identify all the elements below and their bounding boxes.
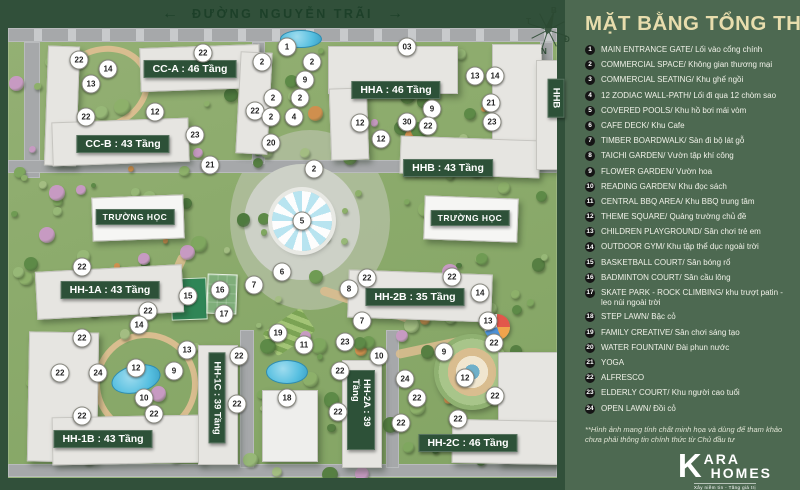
disclaimer-text: **Hình ảnh mang tính chất minh họa và dù… [585, 425, 786, 445]
legend-number-badge: 13 [585, 227, 595, 237]
legend-item: 19FAMILY CREATIVE/ Sân chơi sáng tạo [585, 328, 786, 338]
road-name-label: ĐƯỜNG NGUYỄN TRÃI [192, 7, 373, 21]
map-marker: 14 [130, 316, 149, 335]
pool [266, 360, 308, 384]
map-marker: 22 [73, 258, 92, 277]
map-marker: 22 [485, 334, 504, 353]
building-label: HH-2A : 39 Tầng [347, 370, 375, 450]
map-marker: 30 [398, 113, 417, 132]
logo-k-mark: K [678, 451, 702, 481]
legend-number-badge: 16 [585, 273, 595, 283]
tree [9, 76, 24, 91]
map-marker: 22 [73, 407, 92, 426]
compass-icon: B T Đ N [524, 4, 572, 56]
tree [237, 213, 250, 226]
tree [39, 227, 55, 243]
map-marker: 2 [305, 160, 324, 179]
legend-label: YOGA [601, 358, 624, 368]
legend-label: ELDERLY COURT/ Khu người cao tuổi [601, 388, 740, 398]
map-marker: 12 [146, 103, 165, 122]
legend-number-badge: 19 [585, 328, 595, 338]
building-label: HHB : 43 Tầng [403, 159, 493, 177]
map-marker: 13 [178, 341, 197, 360]
map-marker: 5 [293, 212, 312, 231]
legend-item: 1MAIN ENTRANCE GATE/ Lối vào cổng chính [585, 45, 786, 55]
legend-label: OUTDOOR GYM/ Khu tập thể dục ngoài trời [601, 242, 759, 252]
tree [193, 148, 204, 159]
tree [224, 88, 238, 102]
map-marker: 22 [228, 395, 247, 414]
logo-line1: ARA [704, 452, 772, 466]
tree [180, 245, 195, 260]
svg-text:T: T [526, 17, 531, 26]
map-marker: 9 [296, 71, 315, 90]
legend-number-badge: 12 [585, 212, 595, 222]
legend-number-badge: 23 [585, 388, 595, 398]
legend-number-badge: 3 [585, 75, 595, 85]
map-marker: 11 [295, 336, 314, 355]
svg-text:Đ: Đ [564, 35, 570, 44]
logo-tagline: Xây niềm tin - Tăng giá trị [694, 483, 756, 490]
tree [39, 181, 47, 189]
legend-label: CENTRAL BBQ AREA/ Khu BBQ trung tâm [601, 197, 755, 207]
legend-item: 3COMMERCIAL SEATING/ Khu ghế ngồi [585, 75, 786, 85]
road-bottom [8, 464, 557, 477]
legend-number-badge: 14 [585, 242, 595, 252]
map-marker: 23 [186, 126, 205, 145]
tree [179, 166, 189, 176]
legend-label: OPEN LAWN/ Đồi cỏ [601, 404, 676, 414]
map-marker: 24 [89, 364, 108, 383]
map-marker: 19 [269, 324, 288, 343]
legend-label: COMMERCIAL SEATING/ Khu ghế ngồi [601, 75, 743, 85]
legend-panel: MẶT BẰNG TỔNG THỂ 1MAIN ENTRANCE GATE/ L… [565, 0, 800, 490]
map-marker: 2 [262, 108, 281, 127]
tree [24, 257, 38, 271]
tree [318, 48, 324, 54]
map-marker: 22 [77, 108, 96, 127]
tree [11, 211, 17, 217]
tree [21, 175, 27, 181]
tree [76, 185, 86, 195]
legend-item: 17SKATE PARK - ROCK CLIMBING/ khu trượt … [585, 288, 786, 307]
legend-number-badge: 9 [585, 167, 595, 177]
legend-label: TAICHI GARDEN/ Vườn tập khí công [601, 151, 734, 161]
map-marker: 13 [82, 75, 101, 94]
building-label: TRƯỜNG HỌC [431, 210, 510, 226]
legend-item: 8TAICHI GARDEN/ Vườn tập khí công [585, 151, 786, 161]
legend-number-badge: 6 [585, 121, 595, 131]
map-marker: 15 [179, 287, 198, 306]
kara-homes-logo: K ARA HOMES Xây niềm tin - Tăng giá trị [678, 451, 772, 490]
legend-item: 22ALFRESCO [585, 373, 786, 383]
tree [300, 148, 310, 158]
tree [317, 354, 323, 360]
svg-text:B: B [551, 6, 557, 15]
legend-label: BADMINTON COURT/ Sân cầu lông [601, 273, 731, 283]
tree [355, 190, 362, 197]
map-marker: 13 [466, 67, 485, 86]
map-marker: 20 [262, 134, 281, 153]
legend-item: 2COMMERCIAL SPACE/ Không gian thương mại [585, 60, 786, 70]
map-marker: 23 [483, 113, 502, 132]
legend-item: 16BADMINTON COURT/ Sân cầu lông [585, 273, 786, 283]
map-marker: 22 [443, 268, 462, 287]
legend-item: 23ELDERLY COURT/ Khu người cao tuổi [585, 388, 786, 398]
map-marker: 12 [351, 114, 370, 133]
master-plan-map: ← ĐƯỜNG NGUYỄN TRÃI → B T Đ N CC-A : 46 … [0, 0, 565, 490]
map-marker: 17 [215, 305, 234, 324]
legend-label: SKATE PARK - ROCK CLIMBING/ khu trượt pa… [601, 288, 786, 307]
legend-item: 13CHILDREN PLAYGROUND/ Sân chơi trẻ em [585, 227, 786, 237]
tree [224, 247, 230, 253]
tree [512, 305, 522, 315]
legend-label: WATER FOUNTAIN/ Đài phun nước [601, 343, 729, 353]
legend-label: MAIN ENTRANCE GATE/ Lối vào cổng chính [601, 45, 762, 55]
legend-number-badge: 21 [585, 358, 595, 368]
svg-text:N: N [541, 47, 547, 56]
legend-number-badge: 18 [585, 312, 595, 322]
map-marker: 7 [245, 276, 264, 295]
legend-item: 6CAFE DECK/ Khu Cafe [585, 121, 786, 131]
tree [128, 166, 134, 172]
map-marker: 22 [358, 269, 377, 288]
legend-label: FAMILY CREATIVE/ Sân chơi sáng tạo [601, 328, 740, 338]
legend-number-badge: 15 [585, 258, 595, 268]
legend-label: COVERED POOLS/ Khu hồ bơi mái vòm [601, 106, 746, 116]
tree [322, 467, 338, 478]
tree [243, 453, 257, 467]
legend-label: THEME SQUARE/ Quảng trường chủ đề [601, 212, 746, 222]
map-marker: 12 [456, 369, 475, 388]
map-marker: 7 [353, 312, 372, 331]
building-label: CC-A : 46 Tầng [144, 60, 237, 78]
legend-item: 5COVERED POOLS/ Khu hồ bơi mái vòm [585, 106, 786, 116]
road-left [24, 42, 40, 178]
building-label: HH-2C : 46 Tầng [418, 434, 517, 452]
map-marker: 23 [336, 333, 355, 352]
building-label: HHA : 46 Tầng [351, 81, 440, 99]
map-marker: 22 [51, 364, 70, 383]
map-marker: 22 [408, 389, 427, 408]
legend-item: 10READING GARDEN/ Khu đọc sách [585, 182, 786, 192]
map-marker: 9 [435, 343, 454, 362]
map-marker: 22 [392, 414, 411, 433]
tree [256, 323, 262, 329]
map-marker: 22 [331, 362, 350, 381]
building-label: HHB [548, 79, 565, 118]
legend-number-badge: 10 [585, 182, 595, 192]
map-marker: 22 [70, 51, 89, 70]
legend-number-badge: 2 [585, 60, 595, 70]
map-marker: 13 [479, 312, 498, 331]
legend-item: 12THEME SQUARE/ Quảng trường chủ đề [585, 212, 786, 222]
tree [95, 106, 108, 119]
map-marker: 1 [278, 38, 297, 57]
tree [308, 106, 323, 121]
map-marker: 8 [340, 280, 359, 299]
map-marker: 10 [370, 347, 389, 366]
map-marker: 12 [372, 130, 391, 149]
tree [371, 119, 378, 126]
legend-number-badge: 17 [585, 288, 595, 298]
map-marker: 22 [329, 403, 348, 422]
legend-list: 1MAIN ENTRANCE GATE/ Lối vào cổng chính2… [585, 45, 786, 419]
map-marker: 9 [165, 362, 184, 381]
tree [476, 253, 488, 265]
map-marker: 22 [194, 44, 213, 63]
map-marker: 16 [211, 281, 230, 300]
panel-title: MẶT BẰNG TỔNG THỂ [585, 12, 786, 36]
map-marker: 22 [145, 405, 164, 424]
tree [138, 253, 150, 265]
legend-number-badge: 1 [585, 45, 595, 55]
map-marker: 14 [486, 67, 505, 86]
map-marker: 6 [273, 263, 292, 282]
tree [403, 442, 414, 453]
tree [204, 101, 210, 107]
legend-label: COMMERCIAL SPACE/ Không gian thương mại [601, 60, 772, 70]
tree [404, 199, 411, 206]
map-marker: 24 [396, 370, 415, 389]
building-label: TRƯỜNG HỌC [96, 209, 175, 225]
map-marker: 03 [398, 38, 417, 57]
legend-label: BASKETBALL COURT/ Sân bóng rổ [601, 258, 730, 268]
legend-item: 20WATER FOUNTAIN/ Đài phun nước [585, 343, 786, 353]
legend-number-badge: 5 [585, 106, 595, 116]
legend-label: CHILDREN PLAYGROUND/ Sân chơi trẻ em [601, 227, 761, 237]
tree [275, 296, 282, 303]
map-marker: 21 [482, 94, 501, 113]
site-plan-page: ← ĐƯỜNG NGUYỄN TRÃI → B T Đ N CC-A : 46 … [0, 0, 800, 490]
tree [53, 207, 62, 216]
legend-label: 12 ZODIAC WALL-PATH/ Lối đi qua 12 chòm … [601, 91, 776, 101]
legend-number-badge: 8 [585, 151, 595, 161]
map-marker: 22 [419, 117, 438, 136]
tree [355, 467, 369, 478]
map-marker: 22 [73, 329, 92, 348]
building-label: HH-1B : 43 Tầng [53, 430, 152, 448]
legend-number-badge: 4 [585, 91, 595, 101]
legend-item: 412 ZODIAC WALL-PATH/ Lối đi qua 12 chòm… [585, 91, 786, 101]
legend-number-badge: 20 [585, 343, 595, 353]
building-label: HH-2B : 35 Tầng [365, 288, 464, 306]
tree [261, 229, 267, 235]
map-marker: 14 [471, 284, 490, 303]
legend-number-badge: 7 [585, 136, 595, 146]
map-marker: 2 [303, 53, 322, 72]
legend-label: STEP LAWN/ Bậc cỏ [601, 312, 676, 322]
tree [91, 183, 96, 188]
tree [114, 99, 130, 115]
legend-item: 11CENTRAL BBQ AREA/ Khu BBQ trung tâm [585, 197, 786, 207]
legend-label: ALFRESCO [601, 373, 644, 383]
tree [536, 191, 547, 202]
legend-item: 15BASKETBALL COURT/ Sân bóng rổ [585, 258, 786, 268]
tree [464, 108, 476, 120]
legend-number-badge: 22 [585, 373, 595, 383]
tree [34, 83, 42, 91]
map-marker: 2 [253, 53, 272, 72]
logo-line2: HOMES [711, 466, 772, 480]
tree [527, 299, 535, 307]
map-marker: 18 [278, 389, 297, 408]
map-marker: 4 [285, 108, 304, 127]
legend-label: TIMBER BOARDWALK/ Sàn đi bộ lát gỗ [601, 136, 744, 146]
map-marker: 21 [201, 156, 220, 175]
map-marker: 22 [449, 410, 468, 429]
map-marker: 22 [486, 387, 505, 406]
tree [120, 329, 130, 339]
tree [354, 337, 366, 349]
map-marker: 2 [291, 89, 310, 108]
tree [421, 345, 435, 359]
legend-item: 14OUTDOOR GYM/ Khu tập thể dục ngoài trờ… [585, 242, 786, 252]
legend-label: FLOWER GARDEN/ Vườn hoa [601, 167, 712, 177]
map-marker: 2 [264, 89, 283, 108]
legend-number-badge: 24 [585, 404, 595, 414]
building-label: HH-1C : 39 Tầng [209, 352, 226, 443]
map-marker: 22 [230, 347, 249, 366]
tree [541, 254, 548, 261]
building-label: CC-B : 43 Tầng [76, 135, 169, 153]
road-nguyen-trai: ← ĐƯỜNG NGUYỄN TRÃI → [0, 0, 565, 28]
tree [511, 290, 520, 299]
legend-item: 9FLOWER GARDEN/ Vườn hoa [585, 167, 786, 177]
map-marker: 12 [127, 359, 146, 378]
tree [396, 330, 408, 342]
building-label: HH-1A : 43 Tầng [61, 281, 160, 299]
legend-label: CAFE DECK/ Khu Cafe [601, 121, 685, 131]
legend-item: 21YOGA [585, 358, 786, 368]
legend-item: 24OPEN LAWN/ Đồi cỏ [585, 404, 786, 414]
tree [253, 158, 263, 168]
arrow-right-icon: → [387, 6, 403, 22]
tree [327, 424, 335, 432]
map-marker: 14 [99, 60, 118, 79]
legend-item: 7TIMBER BOARDWALK/ Sàn đi bộ lát gỗ [585, 136, 786, 146]
legend-label: READING GARDEN/ Khu đọc sách [601, 182, 727, 192]
tree [49, 185, 65, 201]
arrow-left-icon: ← [162, 6, 178, 22]
legend-number-badge: 11 [585, 197, 595, 207]
legend-item: 18STEP LAWN/ Bậc cỏ [585, 312, 786, 322]
tree [498, 182, 511, 195]
map-marker: 9 [423, 100, 442, 119]
